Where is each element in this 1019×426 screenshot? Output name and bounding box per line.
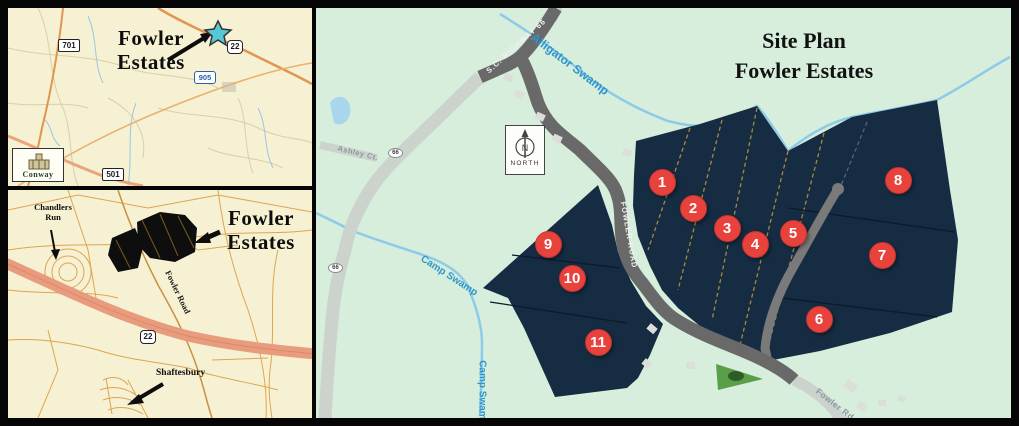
route-shield-66-upper: 66 [388,148,403,158]
lot-marker-4: 4 [742,231,769,258]
regional-location-map: Fowler Estates 701 22 905 501 Conway [8,8,312,186]
local-callout-line2: Estates [214,230,308,254]
stream-label-camp-swamp-vertical: Camp Swamp [477,360,488,418]
lot-marker-10: 10 [559,265,586,292]
north-label: NORTH [511,160,540,167]
route-shield-905: 905 [194,71,216,84]
route-shield-501: 501 [102,168,124,181]
lot-marker-5: 5 [780,220,807,247]
conway-logo-text: Conway [22,170,53,179]
lot-marker-11: 11 [585,329,612,356]
site-plan-title: Site Plan Fowler Estates [644,26,964,86]
regional-callout-line2: Estates [96,50,206,74]
route-shield-701: 701 [58,39,80,52]
lot-marker-7: 7 [869,242,896,269]
conway-building-icon [27,152,51,170]
north-compass: N NORTH [505,125,545,175]
lot-marker-3: 3 [714,215,741,242]
site-plan-figure: Fowler Estates 701 22 905 501 Conway [0,0,1019,426]
site-plan-title-line2: Fowler Estates [644,56,964,86]
regional-callout: Fowler Estates [96,26,206,74]
shaftesbury-arrow-icon [127,384,163,405]
lot-marker-9: 9 [535,231,562,258]
lot-marker-6: 6 [806,306,833,333]
route-shield-66-lower: 66 [328,263,343,273]
regional-callout-line1: Fowler [96,26,206,50]
conway-logo: Conway [12,148,64,182]
site-plan-title-line1: Site Plan [644,26,964,56]
lot-marker-8: 8 [885,167,912,194]
pond [330,97,350,124]
route-shield-22-local: 22 [140,330,156,344]
highway-22-band [8,262,312,354]
local-callout-line1: Fowler [214,206,308,230]
estate-polygons [108,212,197,272]
site-plan-panel: Site Plan Fowler Estates N NORTH S.C. HI… [316,8,1011,418]
lot-marker-1: 1 [649,169,676,196]
local-callout: Fowler Estates [214,206,308,254]
chandlers-run-label: Chandlers Run [22,202,84,222]
green-triangle-parcel [716,364,763,390]
route-shield-22: 22 [227,40,243,54]
shaftesbury-label: Shaftesbury [156,368,205,378]
north-arrow-icon: N [505,126,545,162]
local-location-map: Chandlers Run Fowler Estates Fowler Road… [8,190,312,418]
lot-marker-2: 2 [680,195,707,222]
svg-text:N: N [522,143,529,153]
